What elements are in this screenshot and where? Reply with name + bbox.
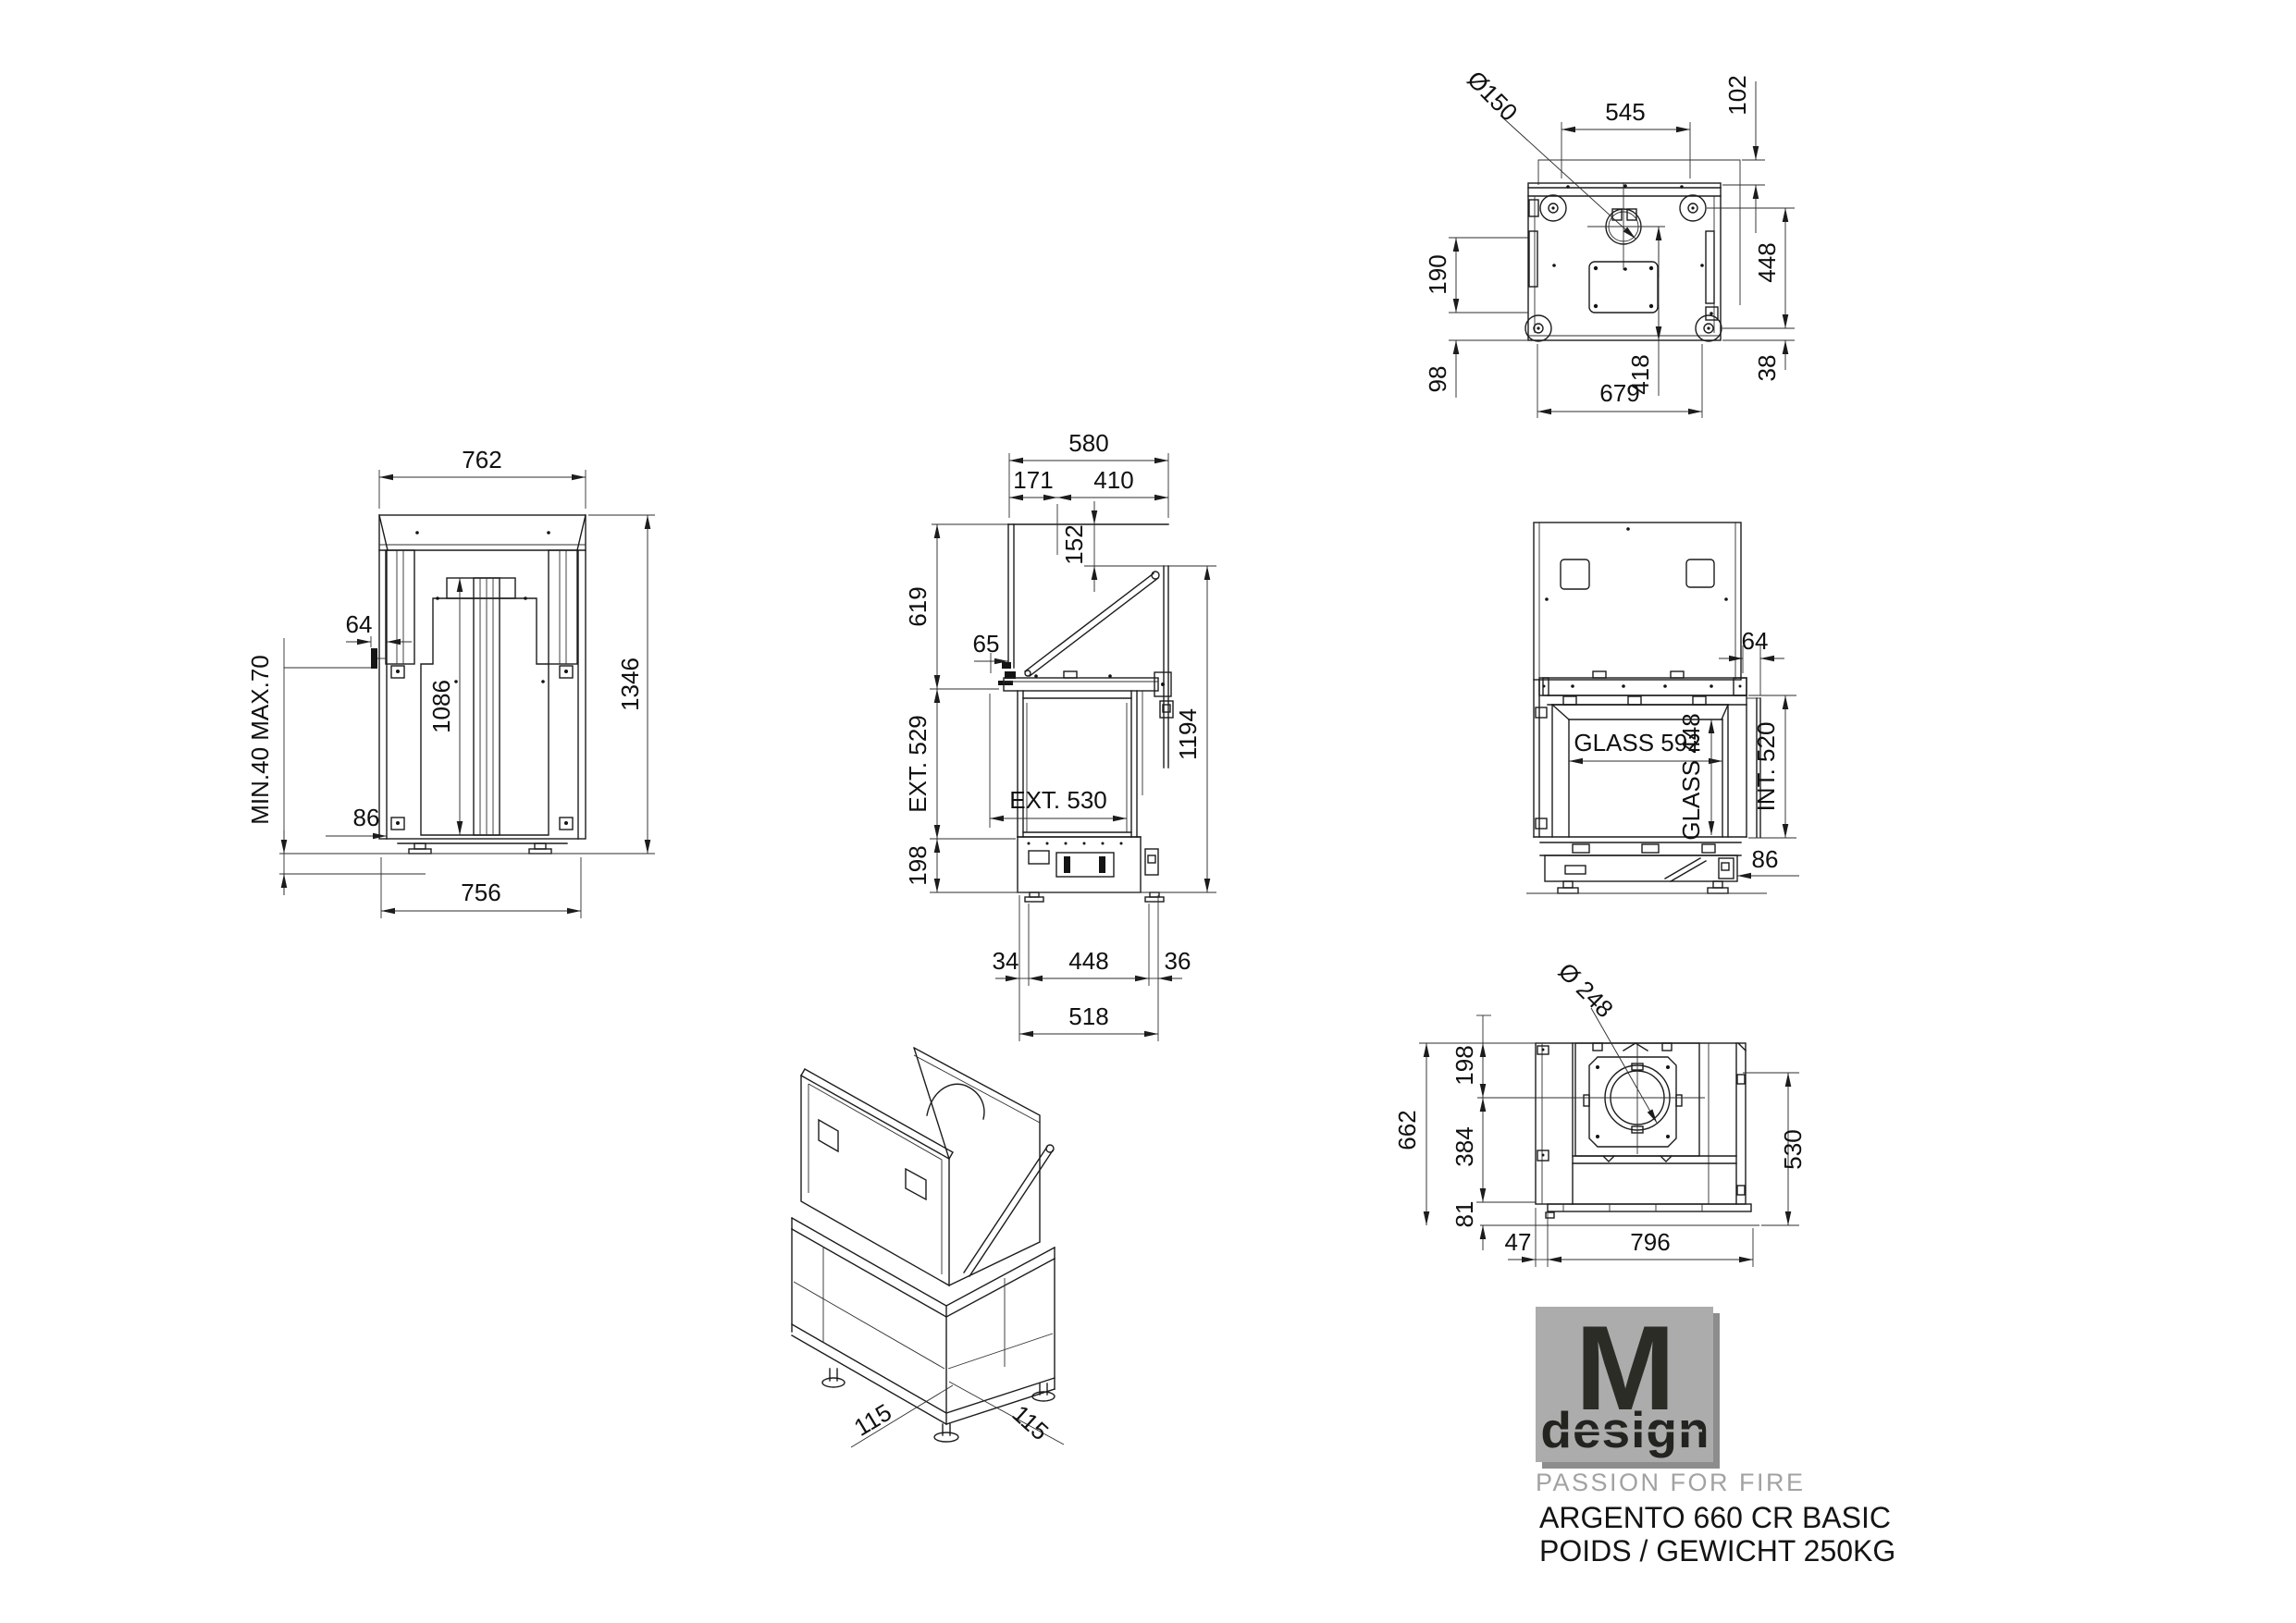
dim-side-depth: 580 [1068,429,1108,457]
dim-side-total: 1194 [1174,708,1202,760]
top-view-dimensions: 545 102 448 38 190 98 418 [1424,66,1795,418]
bottom-view-geometry [1477,1043,1759,1225]
isometric-view: 115 115 [792,1048,1064,1447]
mounting-clips [391,666,573,830]
title-block: M design PASSION FOR FIRE ARGENTO 660 CR… [1536,1300,1895,1568]
dim-rear-center-height: 1086 [427,680,455,733]
dim-bottom-height: 662 [1393,1110,1421,1150]
panel-hole-left [1561,559,1589,589]
dim-side-ext-depth: EXT. 530 [1009,786,1107,814]
dim-side-gap: 65 [973,630,1000,658]
bottom-view: 662 198 384 81 47 796 530 Ø 248 [1393,957,1807,1267]
dim-bottom-o2: 384 [1450,1126,1478,1166]
dim-side-foot-a: 34 [993,947,1019,975]
dim-side-ext-height: EXT. 529 [904,715,932,813]
top-view-geometry [1525,160,1740,341]
technical-drawing: 762 1346 756 1086 64 MIN.40 MAX.70 86 [0,0,2296,1623]
dim-side-foot-b: 448 [1068,947,1108,975]
dim-front-offset: 64 [1742,627,1769,655]
bottom-view-dimensions: 662 198 384 81 47 796 530 Ø 248 [1393,957,1807,1267]
dim-bottom-o1: 198 [1450,1045,1478,1085]
dim-top-w1: 545 [1605,98,1645,126]
back-panel [1534,523,1741,680]
dim-side-base: 198 [904,845,932,885]
dim-rear-width-top: 762 [462,446,501,473]
dim-side-upper: 619 [904,586,932,626]
logo-tagline: PASSION FOR FIRE [1536,1469,1806,1496]
side-view-dimensions: 580 171 410 152 619 EXT. 529 198 1194 65 [904,429,1216,1041]
dim-front-glass-height: GLASS 448 [1677,713,1705,840]
iso-hole-lower [906,1169,926,1199]
dim-bottom-flue-diameter: Ø 248 [1553,957,1619,1023]
dim-top-r1: 448 [1753,242,1781,282]
rear-view: 762 1346 756 1086 64 MIN.40 MAX.70 86 [246,446,655,918]
dim-bottom-inset: 47 [1505,1228,1532,1256]
dim-side-foot-c: 36 [1165,947,1191,975]
dim-top-l1: 190 [1424,254,1451,294]
top-view: 545 102 448 38 190 98 418 [1424,66,1795,418]
rear-view-dimensions: 762 1346 756 1086 64 MIN.40 MAX.70 86 [246,446,655,918]
dim-rear-offset: 64 [346,610,373,638]
dim-side-drop: 152 [1060,524,1088,564]
iso-geometry [792,1048,1064,1447]
dim-rear-feet-range: MIN.40 MAX.70 [246,655,274,825]
front-view-geometry [1526,523,1767,893]
product-weight: POIDS / GEWICHT 250KG [1539,1534,1895,1568]
dim-top-w2: 679 [1599,379,1639,407]
wall-bracket [371,648,377,669]
dim-bottom-o3: 81 [1450,1201,1478,1228]
side-view: 580 171 410 152 619 EXT. 529 198 1194 65 [904,429,1216,1041]
front-view-dimensions: 64 GLASS 592 GLASS 448 INT. 520 86 [1569,627,1799,876]
dim-bottom-width: 796 [1630,1228,1670,1256]
dim-side-footprint: 518 [1068,1002,1108,1030]
product-title: ARGENTO 660 CR BASIC [1539,1501,1891,1534]
diagonal-strut [1025,572,1159,676]
dim-bottom-right-height: 530 [1779,1129,1807,1169]
dim-top-l2: 98 [1424,366,1451,393]
dim-iso-right: 115 [1007,1399,1055,1445]
iso-hole-upper [819,1120,838,1151]
drawing-canvas: 762 1346 756 1086 64 MIN.40 MAX.70 86 [0,0,2296,1623]
dim-iso-left: 115 [849,1398,896,1442]
dim-top-o1: 102 [1723,75,1751,115]
front-view: 64 GLASS 592 GLASS 448 INT. 520 86 [1526,523,1799,893]
panel-hole-right [1686,559,1714,587]
dim-front-base: 86 [1752,845,1779,873]
dim-top-flue-diameter: Ø150 [1462,66,1523,127]
dim-top-r2: 38 [1753,355,1781,382]
dim-side-rear: 410 [1093,466,1133,494]
rear-view-geometry [371,515,586,854]
dim-rear-width-bottom: 756 [461,879,500,906]
dim-front-int-height: INT. 520 [1752,722,1780,812]
dim-rear-height: 1346 [616,658,644,711]
dim-rear-base: 86 [353,804,380,831]
dim-side-front: 171 [1013,466,1053,494]
